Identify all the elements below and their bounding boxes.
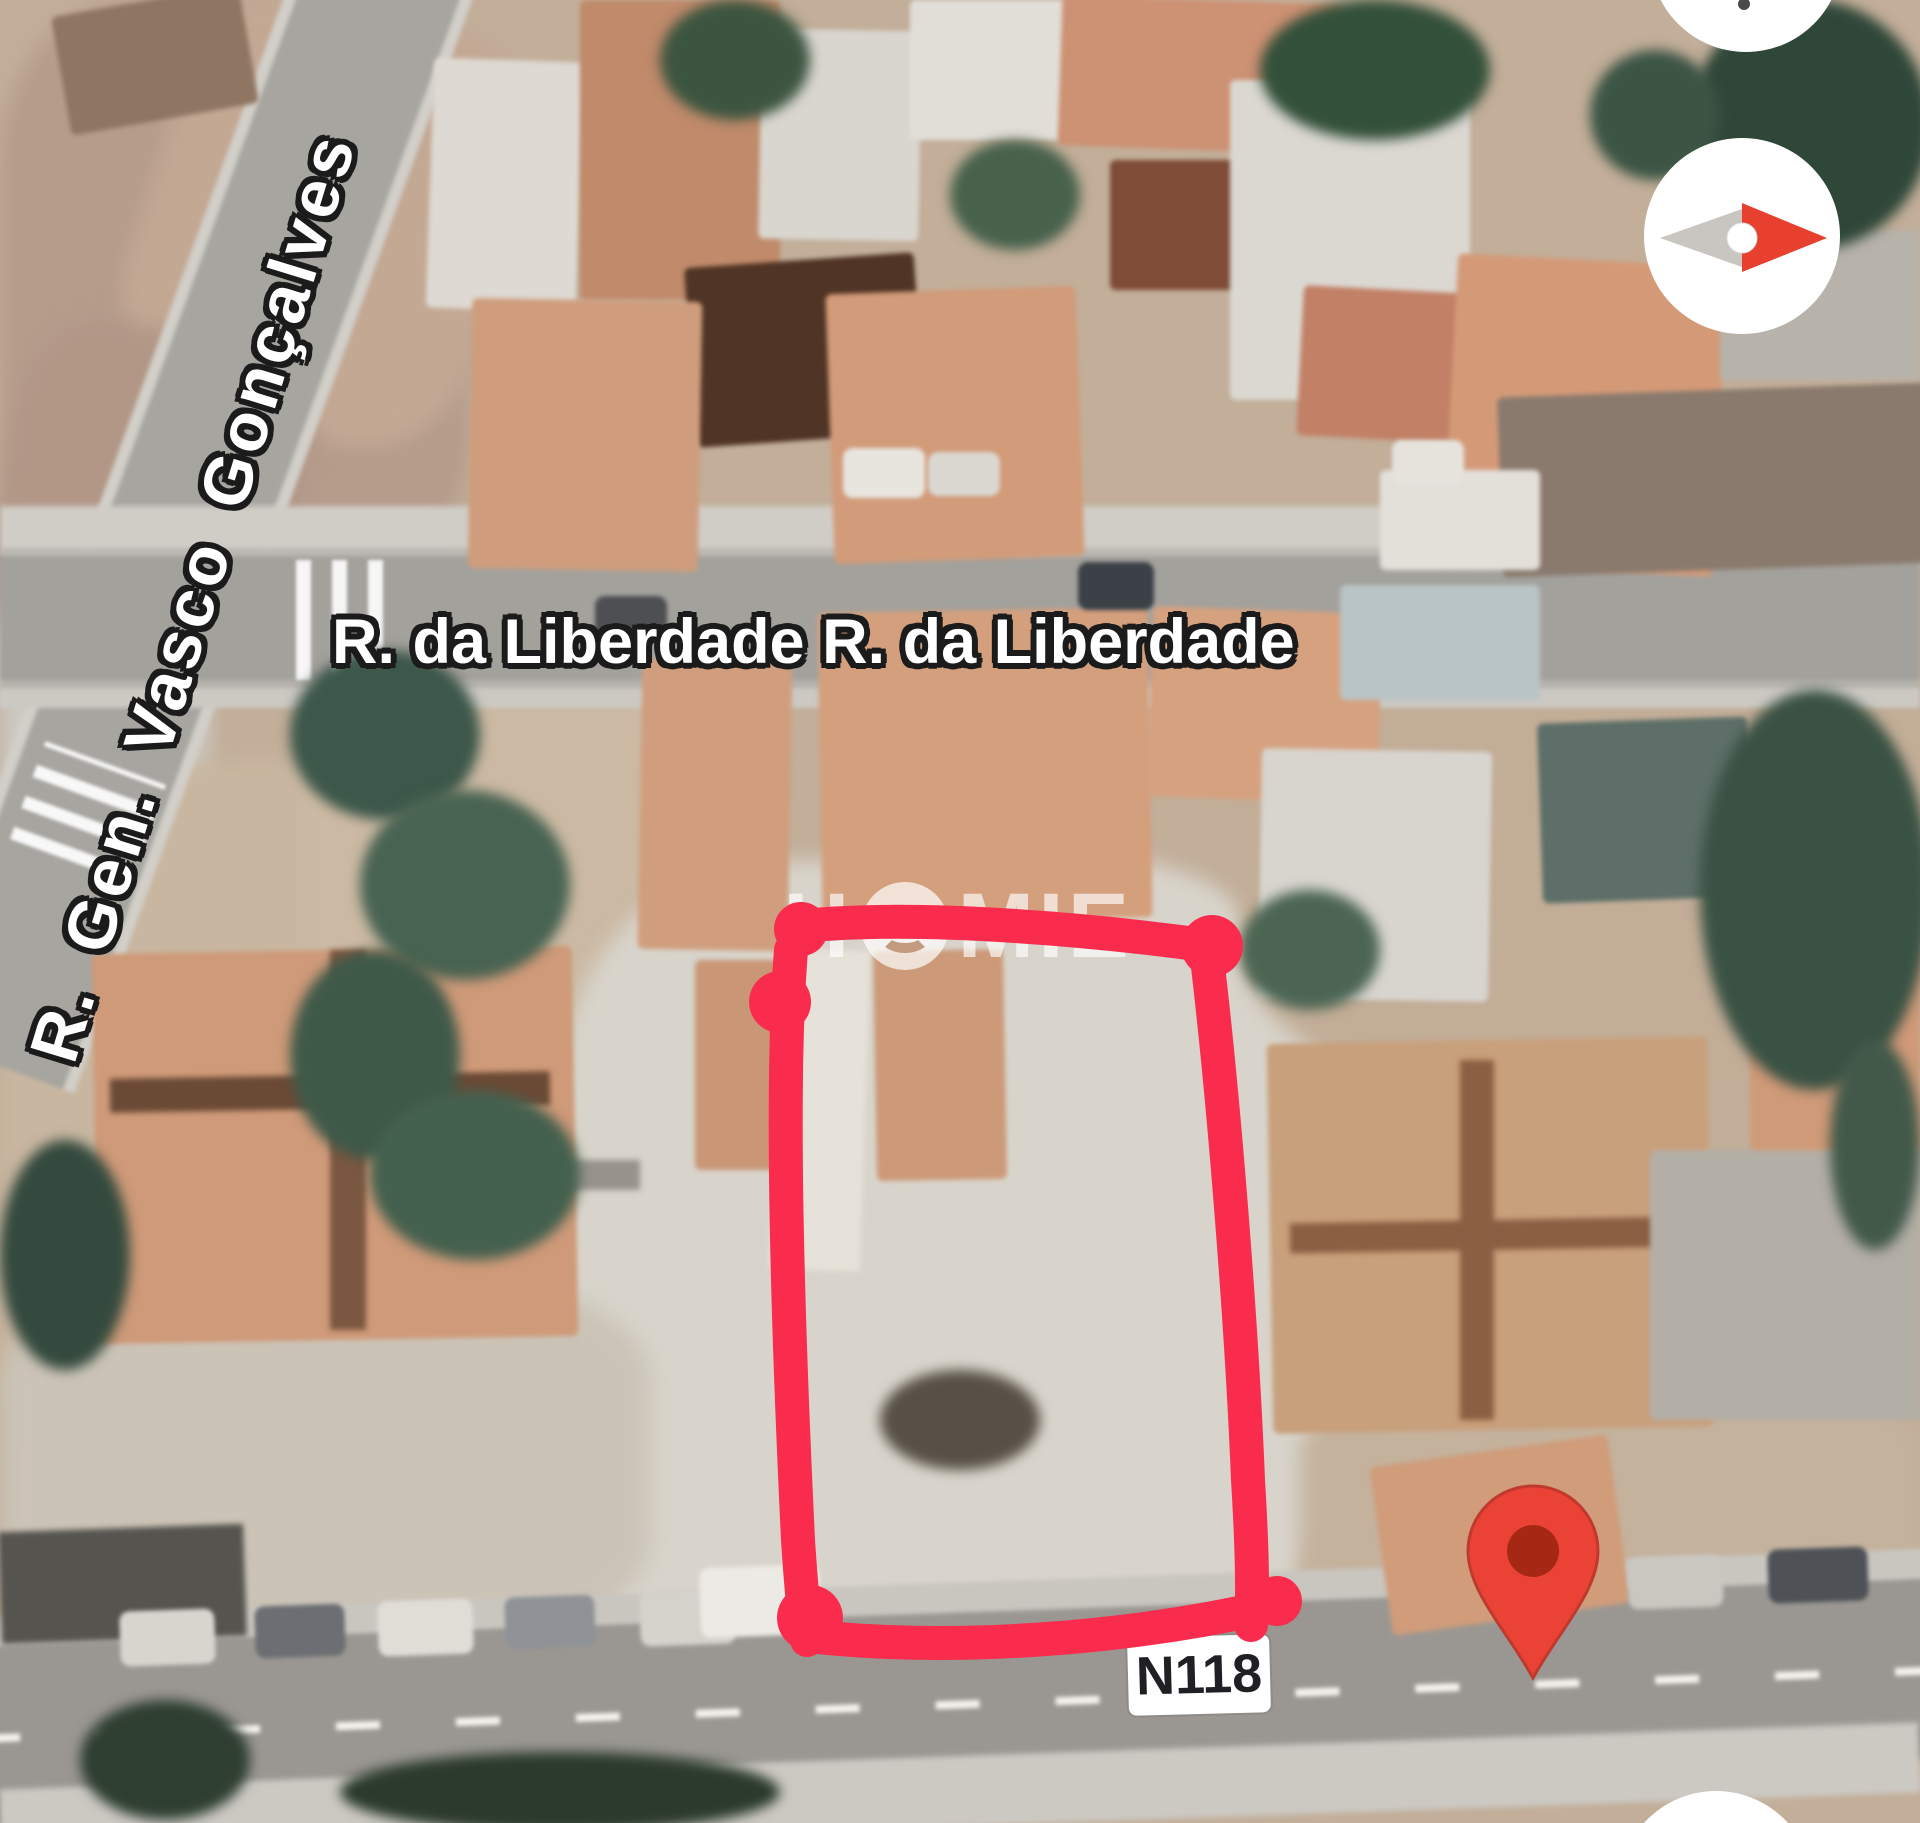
top-fab-button[interactable] <box>1650 0 1842 52</box>
satellite-map[interactable]: R. Gen. Vasco Gonçalves R. da Liberdade … <box>0 0 1920 1823</box>
compass-button[interactable] <box>1644 138 1840 334</box>
annotation-corner-knob <box>1252 1576 1302 1626</box>
annotation-bottom-stroke <box>808 1603 1284 1643</box>
annotation-top-stroke <box>803 922 1225 948</box>
annotation-corner-knob <box>777 1585 843 1651</box>
map-pin[interactable] <box>1468 1486 1598 1678</box>
map-pin-inner-dot <box>1507 1525 1559 1577</box>
annotation-right-stroke <box>1207 958 1252 1625</box>
annotation-corner-knob <box>749 971 811 1033</box>
red-annotation-rectangle <box>749 902 1302 1651</box>
compass-center-dot <box>1727 223 1757 253</box>
bottom-fab-button[interactable] <box>1619 1791 1813 1823</box>
map-pin-body[interactable] <box>1468 1486 1598 1678</box>
overlay-layer <box>0 0 1920 1823</box>
annotation-corner-knob <box>774 902 828 956</box>
annotation-left-stroke <box>786 950 807 1640</box>
annotation-corner-knob <box>1181 915 1243 977</box>
